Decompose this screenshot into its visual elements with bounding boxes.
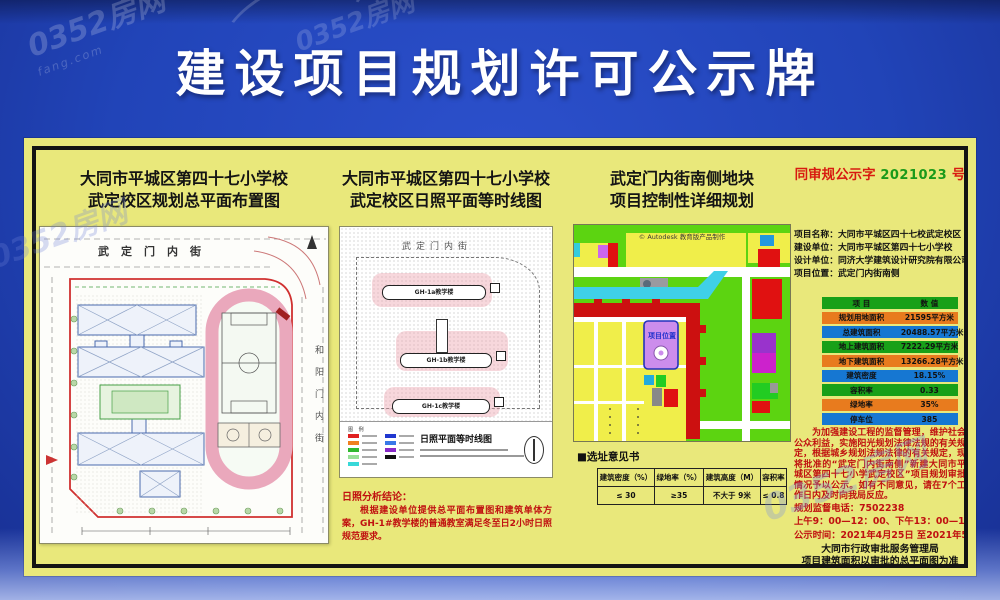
cell-value: ≥35: [654, 487, 703, 505]
area-footnote: 项目建筑面积以审批的总平面图为准: [794, 556, 964, 564]
building-annex: [494, 397, 504, 407]
sunlight-legend: 图 例: [340, 421, 552, 477]
office-hours: 上午9：00—12：00、下午13：00—17：00: [794, 516, 964, 529]
yellow-notice-panel: 大同市平城区第四十七小学校 武定校区规划总平面布置图: [24, 138, 976, 576]
site-plan-svg: [40, 227, 330, 545]
cell-value: ≤ 30: [598, 487, 655, 505]
col-header: 建筑高度（M）: [704, 469, 761, 487]
table-row: 绿地率 35%: [822, 399, 958, 411]
info-design-unit: 设计单位：同济大学建筑设计研究院有限公司: [794, 255, 964, 268]
master-plan-title: 大同市平城区第四十七小学校 武定校区规划总平面布置图: [36, 168, 332, 212]
entry-arrow: [46, 455, 58, 465]
project-info: 项目名称：大同市平城区四十七校武定校区 建设单位：大同市平城区第四十七小学校 设…: [794, 229, 964, 281]
building-annex: [496, 351, 506, 361]
indicator-table: 项 目 数 值 规划用地面积 21595平方米 总建筑面积 20488.57平方…: [822, 297, 958, 425]
notice-board-photo: 建设项目规划许可公示牌 0352房网fang.com 0352房网 0352房网…: [0, 0, 1000, 600]
running-track: [212, 295, 290, 483]
supervision-phone: 规划监督电话：7502238: [794, 503, 964, 516]
section-master-plan: 大同市平城区第四十七小学校 武定校区规划总平面布置图: [36, 150, 332, 564]
conclusion-body: 根据建设单位提供总平面布置图和建筑单体方案，GH-1#教学楼的普通教室满足冬至日…: [342, 505, 552, 544]
building-gh1b: GH-1b教学楼: [400, 353, 492, 368]
table-row: 容积率 0.33: [822, 384, 958, 396]
courtyard: [100, 385, 180, 419]
north-arrow: [307, 235, 317, 249]
building-gh1c: GH-1c教学楼: [392, 399, 490, 414]
table-row: 地上建筑面积 7222.29平方米: [822, 341, 958, 353]
table-header-row: 项 目 数 值: [822, 297, 958, 309]
cell-value: ≤ 0.8: [760, 487, 786, 505]
agency-name: 大同市行政审批服务管理局: [794, 544, 964, 556]
building-annex: [490, 283, 500, 293]
agency-signature: 大同市行政审批服务管理局 项目建筑面积以审批的总平面图为准: [794, 544, 964, 564]
section-sunlight-plan: 大同市平城区第四十七小学校 武定校区日照平面等时线图 武定门内街 GH-1a教学…: [336, 150, 556, 564]
cell-value: 不大于 9米: [704, 487, 761, 505]
master-plan-drawing: 武定门内街 和阳门内街: [39, 226, 329, 544]
compass-icon: [526, 426, 546, 474]
banner: 建设项目规划许可公示牌: [0, 0, 1000, 138]
site-opinion-section: ■选址意见书 建筑密度（%） 绿地率（%） 建筑高度（M） 容积率 ≤ 30 ≥…: [577, 449, 793, 505]
col-header: 绿地率（%）: [654, 469, 703, 487]
project-site-label: 项目位置: [644, 331, 680, 341]
zoning-map: © Autodesk 教育版产品制作 项目位置: [573, 224, 791, 442]
table-row: 总建筑面积 20488.57平方米: [822, 326, 958, 338]
table-row: 地下建筑面积 13266.28平方米: [822, 355, 958, 367]
sunlight-plan-drawing: 武定门内街 GH-1a教学楼 GH-1b教学楼 GH-1c教学楼: [339, 226, 553, 478]
publicity-period: 公示时间：2021年4月25日 至2021年5月6日: [794, 530, 964, 543]
stamp-suffix: 号: [952, 167, 964, 183]
info-project-location: 项目位置：武定门内街南侧: [794, 268, 964, 281]
zoning-map-svg: [574, 225, 791, 442]
info-project-name: 项目名称：大同市平城区四十七校武定校区: [794, 229, 964, 242]
site-opinion-table: 建筑密度（%） 绿地率（%） 建筑高度（M） 容积率 ≤ 30 ≥35 不大于 …: [597, 468, 787, 505]
stamp-number: 2021023: [880, 168, 947, 183]
sunlight-conclusion: 日照分析结论： 根据建设单位提供总平面布置图和建筑单体方案，GH-1#教学楼的普…: [342, 488, 552, 544]
conclusion-title: 日照分析结论：: [342, 488, 552, 503]
legend-caption: 图 例: [348, 426, 414, 433]
supervision-notice: 为加强建设工程的监督管理，维护社会公众利益，实施阳光规划法律法规的有关规定，根据…: [794, 428, 964, 502]
basketball-courts: [218, 423, 280, 447]
table-row: 建筑密度 18.15%: [822, 370, 958, 382]
dimension-line: [82, 527, 290, 535]
legend-swatches: 图 例: [348, 426, 414, 474]
street-label-heyangmen: 和阳门内街: [312, 345, 325, 455]
legend-title: 日照平面等时线图: [420, 432, 524, 445]
table-row: 规划用地面积 21595平方米: [822, 312, 958, 324]
site-opinion-title: ■选址意见书: [577, 449, 793, 464]
col-header: 容积率: [760, 469, 786, 487]
street-label-wudingmen: 武定门内街: [98, 243, 213, 259]
building-connector: [436, 319, 448, 353]
building-gh1a: GH-1a教学楼: [382, 285, 486, 300]
section-regulatory-plan: 武定门内街南侧地块 项目控制性详细规划: [571, 150, 793, 564]
sunlight-plan-title: 大同市平城区第四十七小学校 武定校区日照平面等时线图: [336, 168, 556, 212]
table-row: 停车位 385: [822, 413, 958, 425]
section-permit-details: 同审规公示字 2021023 号 项目名称：大同市平城区四十七校武定校区 建设单…: [794, 150, 964, 564]
stamp-prefix: 同审规公示字: [795, 167, 876, 183]
regulatory-plan-title: 武定门内街南侧地块 项目控制性详细规划: [571, 168, 793, 212]
autodesk-watermark: © Autodesk 教育版产品制作: [574, 231, 790, 241]
street-label-wudingmen: 武定门内街: [402, 239, 472, 252]
info-construction-unit: 建设单位：大同市平城区第四十七小学校: [794, 242, 964, 255]
permit-number-stamp: 同审规公示字 2021023 号: [794, 163, 964, 183]
page-title: 建设项目规划许可公示牌: [0, 0, 1000, 106]
col-header: 建筑密度（%）: [598, 469, 655, 487]
